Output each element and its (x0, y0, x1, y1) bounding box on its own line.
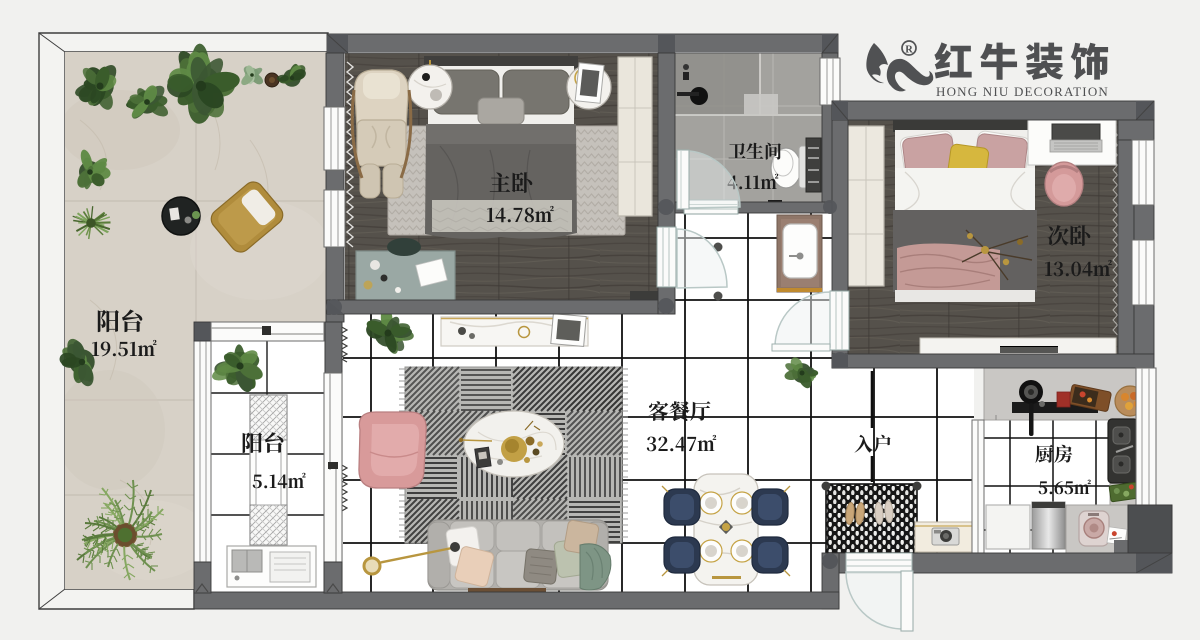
svg-text:R: R (905, 45, 913, 56)
svg-text:HONG NIU DECORATION: HONG NIU DECORATION (936, 84, 1109, 99)
